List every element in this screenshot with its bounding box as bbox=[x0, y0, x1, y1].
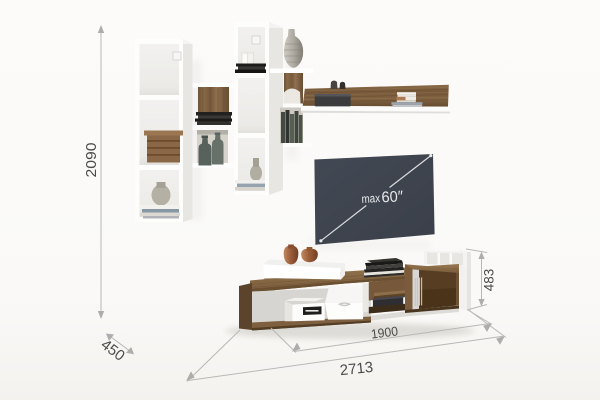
svg-text:2090: 2090 bbox=[83, 143, 100, 178]
svg-text:2713: 2713 bbox=[339, 359, 374, 379]
svg-text:60″: 60″ bbox=[381, 188, 404, 206]
svg-text:max: max bbox=[361, 191, 380, 206]
svg-text:483: 483 bbox=[482, 269, 497, 292]
